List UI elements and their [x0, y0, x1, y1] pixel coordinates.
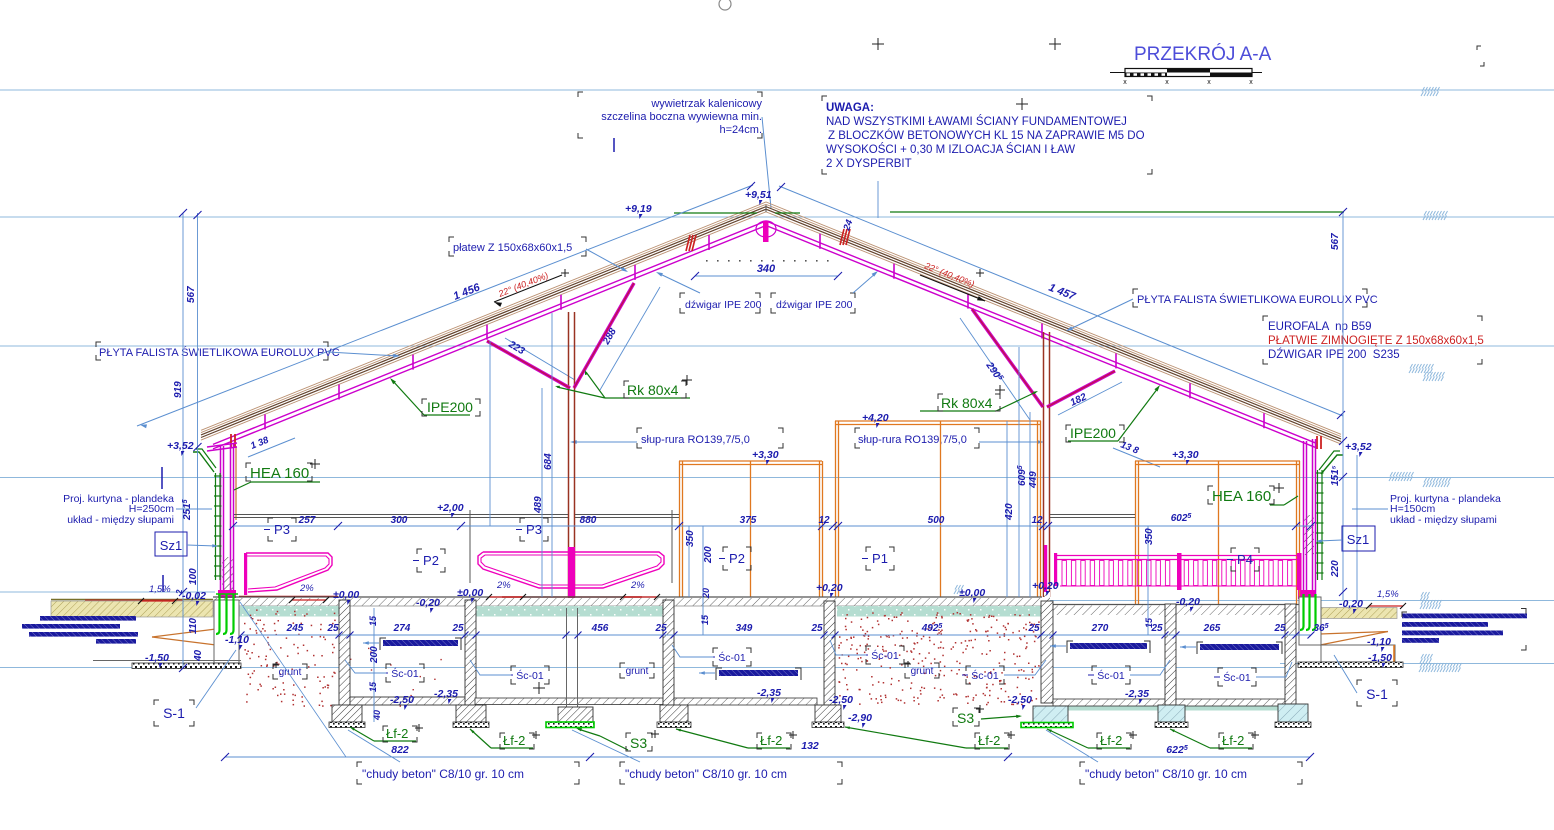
svg-text:DŹWIGAR IPE 200 S235: DŹWIGAR IPE 200 S235 [1268, 348, 1400, 361]
svg-text:1,5%: 1,5% [149, 584, 171, 595]
svg-text:449: 449 [1028, 471, 1039, 489]
svg-text:25: 25 [1150, 623, 1163, 634]
svg-text:245: 245 [286, 623, 304, 634]
svg-text:S3: S3 [630, 735, 647, 751]
svg-text:-0,02: -0,02 [182, 590, 206, 602]
svg-text:PRZEKRÓJ A-A: PRZEKRÓJ A-A [1134, 43, 1272, 65]
svg-text:"chudy beton" C8/10 gr. 10 cm: "chudy beton" C8/10 gr. 10 cm [625, 767, 787, 781]
svg-text:S3: S3 [957, 710, 974, 726]
svg-text:-0,20: -0,20 [1176, 596, 1200, 608]
svg-text:PŁYTA FALISTA ŚWIETLIKOWA EURO: PŁYTA FALISTA ŚWIETLIKOWA EUROLUX PVC [99, 346, 340, 359]
svg-text:265: 265 [1203, 623, 1221, 634]
svg-text:WYSOKOŚCI + 0,30 M IZLOACJA ŚC: WYSOKOŚCI + 0,30 M IZLOACJA ŚCIAN I ŁAW [826, 143, 1075, 156]
svg-text:+3,52: +3,52 [167, 440, 194, 452]
svg-text:375: 375 [740, 515, 757, 526]
svg-text:15: 15 [368, 615, 378, 626]
svg-text:x: x [1165, 79, 1169, 86]
svg-text:Łf-2: Łf-2 [978, 733, 1000, 748]
svg-text:Łf-2: Łf-2 [760, 733, 782, 748]
svg-text:x: x [1249, 79, 1253, 86]
svg-text:25: 25 [1273, 623, 1286, 634]
svg-text:+3,30: +3,30 [752, 449, 779, 461]
svg-text:2%: 2% [299, 583, 314, 594]
svg-text:IPE200: IPE200 [427, 399, 473, 415]
svg-text:110: 110 [188, 618, 199, 634]
svg-text:P3: P3 [274, 522, 290, 537]
svg-text:NAD WSZYSTKIMI ŁAWAMI ŚCIANY F: NAD WSZYSTKIMI ŁAWAMI ŚCIANY FUNDAMENTOW… [826, 115, 1127, 128]
svg-text:25: 25 [326, 623, 339, 634]
svg-text:HEA 160: HEA 160 [1212, 488, 1271, 505]
svg-text:IPE200: IPE200 [1070, 425, 1116, 441]
svg-text:-1,50: -1,50 [145, 652, 169, 664]
svg-text:Śc-01: Śc-01 [871, 649, 899, 662]
svg-text:40: 40 [372, 710, 382, 721]
svg-text:-2,35: -2,35 [1125, 688, 1149, 700]
svg-text:Śc-01: Śc-01 [971, 669, 999, 682]
svg-text:-2,50: -2,50 [1008, 694, 1032, 706]
svg-text:wywietrzak kalenicowy: wywietrzak kalenicowy [650, 98, 762, 110]
svg-text:350: 350 [1144, 528, 1155, 545]
svg-text:+4,20: +4,20 [862, 412, 889, 424]
svg-text:340: 340 [757, 263, 776, 275]
svg-text:-1,10: -1,10 [225, 634, 249, 646]
svg-text:Łf-2: Łf-2 [503, 733, 525, 748]
svg-text:1,5%: 1,5% [1377, 589, 1399, 600]
svg-text:+9,51: +9,51 [745, 189, 772, 201]
svg-text:274: 274 [393, 623, 411, 634]
svg-text:"chudy beton" C8/10 gr. 10 cm: "chudy beton" C8/10 gr. 10 cm [1085, 767, 1247, 781]
svg-text:P4: P4 [1237, 552, 1253, 567]
svg-text:"chudy beton" C8/10 gr. 10 cm: "chudy beton" C8/10 gr. 10 cm [362, 767, 524, 781]
svg-text:Rk 80x4: Rk 80x4 [941, 395, 993, 411]
svg-text:-1,50: -1,50 [1368, 652, 1392, 664]
svg-text:dźwigar IPE 200: dźwigar IPE 200 [776, 299, 853, 311]
svg-text:h=24cm.: h=24cm. [720, 124, 763, 136]
svg-text:S-1: S-1 [163, 705, 185, 721]
svg-text:15: 15 [700, 614, 710, 625]
svg-text:100: 100 [188, 568, 199, 585]
svg-text:±0,00: ±0,00 [457, 587, 483, 599]
svg-text:+9,19: +9,19 [625, 203, 652, 215]
svg-text:grunt: grunt [626, 666, 649, 677]
svg-text:-2,50: -2,50 [829, 694, 853, 706]
svg-text:PŁATWIE ZIMNOGIĘTE Z 150x68x60: PŁATWIE ZIMNOGIĘTE Z 150x68x60x1,5 [1268, 335, 1484, 347]
svg-text:S-1: S-1 [1366, 686, 1388, 702]
svg-text:P2: P2 [423, 553, 439, 568]
svg-text:880: 880 [580, 515, 597, 526]
svg-text:-0,20: -0,20 [416, 597, 440, 609]
svg-text:15: 15 [368, 681, 378, 692]
svg-text:500: 500 [928, 515, 945, 526]
svg-text:+3,52: +3,52 [1345, 441, 1372, 453]
svg-text:420: 420 [1004, 503, 1015, 521]
svg-text:25: 25 [654, 623, 667, 634]
svg-text:Z BLOCZKÓW BETONOWYCH KL 15 NA: Z BLOCZKÓW BETONOWYCH KL 15 NA ZAPRAWIE … [828, 129, 1145, 142]
svg-text:±0,00: ±0,00 [959, 587, 985, 599]
svg-text:EUROFALA np B59: EUROFALA np B59 [1268, 321, 1372, 333]
svg-text:płatew Z 150x68x60x1,5: płatew Z 150x68x60x1,5 [453, 242, 572, 254]
svg-text:P1: P1 [872, 551, 888, 566]
svg-text:-2,50: -2,50 [390, 694, 414, 706]
svg-text:2%: 2% [630, 580, 645, 591]
svg-text:+2,00: +2,00 [437, 502, 464, 514]
svg-text:350: 350 [685, 530, 696, 547]
svg-text:567: 567 [1330, 233, 1341, 250]
svg-text:-2,35: -2,35 [434, 688, 458, 700]
svg-text:200: 200 [369, 646, 380, 664]
svg-text:+0,20: +0,20 [816, 582, 843, 594]
svg-text:-2,90: -2,90 [848, 712, 872, 724]
svg-text:dźwigar IPE 200: dźwigar IPE 200 [685, 299, 762, 311]
svg-text:200: 200 [703, 546, 714, 564]
svg-text:x: x [1123, 79, 1127, 86]
svg-text:12: 12 [1031, 515, 1043, 526]
svg-text:2 X DYSPERBIT: 2 X DYSPERBIT [826, 158, 912, 170]
svg-text:szczelina boczna wywiewna min.: szczelina boczna wywiewna min. [601, 111, 762, 123]
svg-text:+0,20: +0,20 [1032, 580, 1059, 592]
svg-text:40: 40 [193, 649, 204, 662]
svg-text:+3,30: +3,30 [1172, 449, 1199, 461]
svg-text:489: 489 [533, 496, 544, 514]
svg-text:Łf-2: Łf-2 [1100, 733, 1122, 748]
svg-text:25: 25 [451, 623, 464, 634]
svg-text:2%: 2% [496, 580, 511, 591]
svg-text:20: 20 [701, 588, 711, 599]
svg-text:Śc-01: Śc-01 [1097, 669, 1125, 682]
svg-text:220: 220 [1330, 560, 1341, 578]
svg-text:x: x [1207, 79, 1211, 86]
svg-text:układ - między słupami: układ - między słupami [1390, 514, 1497, 526]
svg-text:słup-rura RO139,7/5,0: słup-rura RO139,7/5,0 [858, 434, 967, 446]
svg-text:Śc-01: Śc-01 [1223, 671, 1251, 684]
svg-text:±0,00: ±0,00 [333, 589, 359, 601]
svg-text:-1,10: -1,10 [1367, 636, 1391, 648]
svg-text:grunt: grunt [279, 667, 302, 678]
svg-text:684: 684 [543, 453, 554, 470]
svg-text:układ - między słupami: układ - między słupami [67, 514, 174, 526]
svg-text:567: 567 [186, 286, 197, 303]
svg-text:151⁵: 151⁵ [1330, 465, 1341, 486]
svg-text:Śc-01: Śc-01 [718, 651, 746, 664]
svg-text:257: 257 [298, 515, 316, 526]
svg-text:Łf-2: Łf-2 [386, 726, 408, 741]
svg-text:132: 132 [801, 740, 819, 752]
svg-text:słup-rura RO139,7/5,0: słup-rura RO139,7/5,0 [641, 434, 750, 446]
svg-text:P3: P3 [526, 522, 542, 537]
svg-text:300: 300 [391, 515, 408, 526]
svg-text:HEA 160: HEA 160 [250, 465, 309, 482]
svg-text:PŁYTA FALISTA ŚWIETLIKOWA EURO: PŁYTA FALISTA ŚWIETLIKOWA EUROLUX PVC [1137, 293, 1378, 306]
svg-text:349: 349 [736, 623, 753, 634]
svg-text:Śc-01: Śc-01 [516, 669, 544, 682]
svg-text:25: 25 [810, 623, 823, 634]
svg-text:P2: P2 [729, 551, 745, 566]
svg-text:grunt: grunt [911, 666, 934, 677]
svg-text:270: 270 [1091, 623, 1109, 634]
svg-text:456: 456 [591, 623, 609, 634]
svg-text:Sz1: Sz1 [160, 538, 182, 553]
svg-text:Łf-2: Łf-2 [1222, 733, 1244, 748]
svg-text:UWAGA:: UWAGA: [826, 102, 874, 114]
svg-text:12: 12 [818, 515, 830, 526]
svg-text:822: 822 [391, 744, 409, 756]
svg-text:Śc-01: Śc-01 [391, 667, 419, 680]
svg-text:25: 25 [1027, 623, 1040, 634]
svg-text:919: 919 [173, 381, 184, 398]
svg-text:-2,35: -2,35 [757, 687, 781, 699]
svg-text:-0,20: -0,20 [1339, 598, 1363, 610]
svg-text:Rk 80x4: Rk 80x4 [627, 382, 679, 398]
svg-text:Sz1: Sz1 [1347, 532, 1369, 547]
